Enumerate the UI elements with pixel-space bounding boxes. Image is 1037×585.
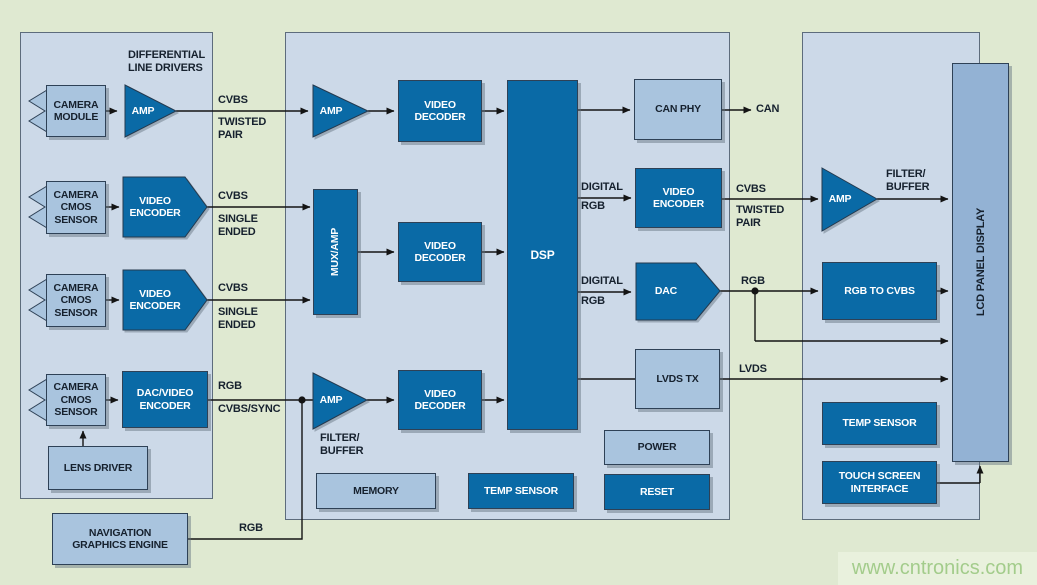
camera-cmos-sensor-block-2: CAMERA CMOS SENSOR (46, 274, 106, 327)
reset-label: RESET (640, 486, 674, 499)
camera-cmos-sensor-block-3: CAMERA CMOS SENSOR (46, 374, 106, 426)
memory-block: MEMORY (316, 473, 436, 509)
dsp-block: DSP (507, 80, 578, 430)
video-decoder-block-1: VIDEO DECODER (398, 80, 482, 142)
amp-label: AMP (315, 394, 347, 406)
lcd-panel-display-label: LCD PANEL DISPLAY (975, 208, 987, 316)
wire-label-digital-rgb-2: RGB (581, 295, 605, 308)
wire-label-cvbs-3: CVBS (218, 282, 248, 295)
filter-buffer-label-middle: FILTER/ BUFFER (320, 432, 363, 458)
wire-label-single-ended-2: SINGLE ENDED (218, 306, 258, 332)
lens-driver-label: LENS DRIVER (64, 462, 132, 475)
wire-label-dac-rgb: RGB (741, 275, 765, 288)
mux-amp-label: MUX/AMP (329, 228, 341, 276)
camera-module-label: CAMERA MODULE (54, 99, 99, 124)
lvds-tx-label: LVDS TX (656, 373, 698, 386)
wire-label-digital-2: DIGITAL (581, 275, 623, 288)
power-label: POWER (638, 441, 677, 454)
can-phy-block: CAN PHY (634, 79, 722, 140)
dac-video-encoder-label: DAC/VIDEO ENCODER (137, 387, 194, 412)
rgb-to-cvbs-label: RGB TO CVBS (844, 285, 915, 298)
filter-buffer-label-right: FILTER/ BUFFER (886, 168, 929, 194)
junction-dot (298, 396, 305, 403)
wire-label-enc-cvbs: CVBS (736, 183, 766, 196)
amp-label: AMP (315, 105, 347, 117)
video-decoder-label: VIDEO DECODER (414, 388, 465, 413)
left-panel-heading: DIFFERENTIAL LINE DRIVERS (128, 49, 214, 75)
navigation-graphics-engine-block: NAVIGATION GRAPHICS ENGINE (52, 513, 188, 565)
video-encoder-label: VIDEO ENCODER (123, 288, 187, 312)
wire-label-can: CAN (756, 103, 779, 116)
video-decoder-label: VIDEO DECODER (414, 99, 465, 124)
wire-label-twisted-pair-1: TWISTED PAIR (218, 116, 266, 142)
video-decoder-block-3: VIDEO DECODER (398, 370, 482, 430)
can-phy-label: CAN PHY (655, 103, 701, 116)
video-decoder-label: VIDEO DECODER (414, 240, 465, 265)
touch-screen-interface-block: TOUCH SCREEN INTERFACE (822, 461, 937, 504)
lvds-tx-block: LVDS TX (635, 349, 720, 409)
touch-screen-interface-label: TOUCH SCREEN INTERFACE (839, 470, 920, 495)
wire-label-digital-1: DIGITAL (581, 181, 623, 194)
temp-sensor-block-middle: TEMP SENSOR (468, 473, 574, 509)
wire-label-cvbs-sync: CVBS/SYNC (218, 403, 280, 416)
temp-sensor-label: TEMP SENSOR (842, 417, 916, 430)
wire-label-nav-rgb: RGB (239, 522, 263, 535)
wire-label-digital-rgb-1: RGB (581, 200, 605, 213)
camera-cmos-sensor-block-1: CAMERA CMOS SENSOR (46, 181, 106, 234)
wire-label-cvbs-1: CVBS (218, 94, 248, 107)
wire-label-rgb-1: RGB (218, 380, 242, 393)
wire-label-lvds: LVDS (739, 363, 767, 376)
camera-cmos-sensor-label: CAMERA CMOS SENSOR (54, 282, 99, 320)
memory-label: MEMORY (353, 485, 399, 498)
wire-label-cvbs-2: CVBS (218, 190, 248, 203)
watermark-text: www.cntronics.com (852, 557, 1023, 580)
amp-label: AMP (127, 105, 159, 117)
temp-sensor-label: TEMP SENSOR (484, 485, 558, 498)
temp-sensor-block-right: TEMP SENSOR (822, 402, 937, 445)
dac-label: DAC (636, 285, 696, 297)
amp-label: AMP (824, 193, 856, 205)
dsp-label: DSP (530, 249, 554, 262)
video-encoder-label: VIDEO ENCODER (653, 186, 704, 211)
block-diagram: DIFFERENTIAL LINE DRIVERS CAMERA MODULE … (0, 0, 1037, 585)
rgb-to-cvbs-block: RGB TO CVBS (822, 262, 937, 320)
lens-driver-block: LENS DRIVER (48, 446, 148, 490)
video-encoder-block-middle: VIDEO ENCODER (635, 168, 722, 228)
video-decoder-block-2: VIDEO DECODER (398, 222, 482, 282)
reset-block: RESET (604, 474, 710, 510)
junction-dot (751, 287, 758, 294)
camera-cmos-sensor-label: CAMERA CMOS SENSOR (54, 189, 99, 227)
camera-module-block: CAMERA MODULE (46, 85, 106, 137)
video-encoder-label: VIDEO ENCODER (123, 195, 187, 219)
power-block: POWER (604, 430, 710, 465)
watermark: www.cntronics.com (838, 552, 1037, 585)
camera-cmos-sensor-label: CAMERA CMOS SENSOR (54, 381, 99, 419)
navigation-graphics-engine-label: NAVIGATION GRAPHICS ENGINE (72, 527, 168, 552)
dac-video-encoder-block: DAC/VIDEO ENCODER (122, 371, 208, 428)
wire-label-single-ended-1: SINGLE ENDED (218, 213, 258, 239)
wire-label-enc-twisted-pair: TWISTED PAIR (736, 204, 784, 230)
